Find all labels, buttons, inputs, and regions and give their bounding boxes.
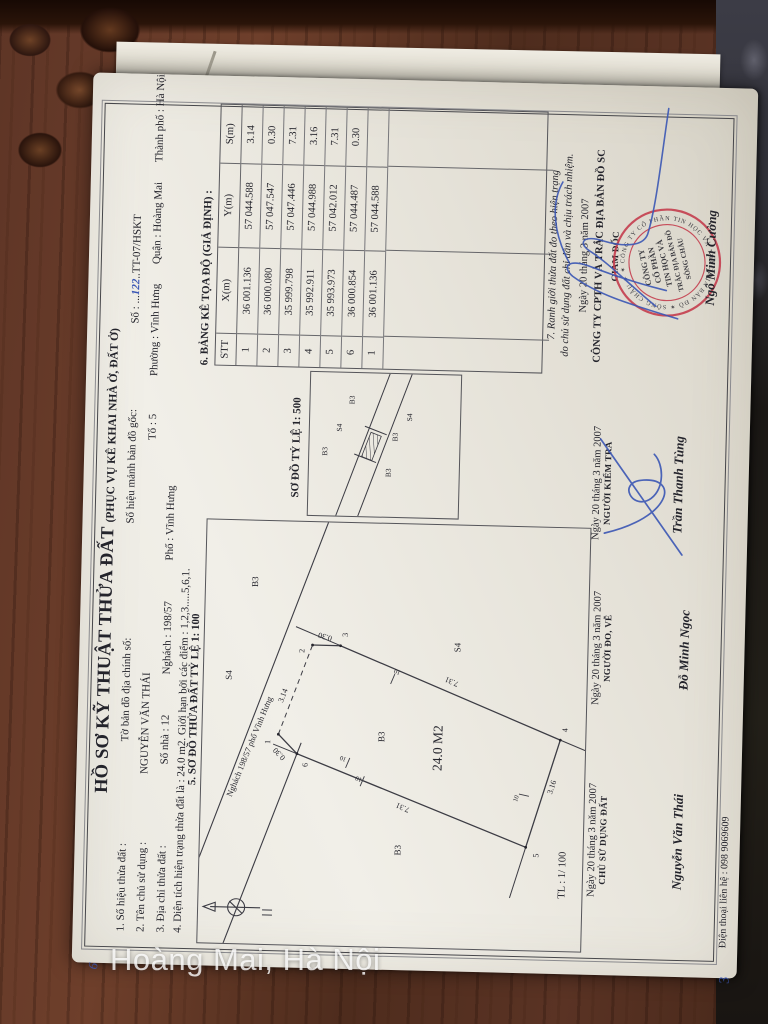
alley-value: Nghách : 198/57	[161, 601, 175, 675]
svg-text:1: 1	[263, 740, 272, 744]
svg-text:Nghách 198/57 phố Vĩnh Hưng: Nghách 198/57 phố Vĩnh Hưng	[224, 694, 274, 798]
svg-text:S4: S4	[405, 413, 414, 421]
svg-text:S4: S4	[335, 423, 344, 431]
checker-signature	[589, 391, 693, 573]
owner-name: NGUYỄN VĂN THÁI	[138, 672, 152, 774]
inset-plot-hatched	[362, 432, 382, 460]
svg-text:0.30: 0.30	[317, 630, 333, 643]
svg-text:B3: B3	[347, 395, 356, 404]
svg-text:B3: B3	[250, 576, 260, 587]
map-sheet-label: Tờ bản đồ địa chính số:	[119, 637, 134, 741]
svg-text:B3: B3	[391, 432, 400, 441]
svg-text:7.31: 7.31	[444, 675, 460, 689]
camera-location-watermark: Hoàng Mai, Hà Nội	[110, 942, 380, 978]
survey-document-page: HỒ SƠ KỸ THUẬT THỬA ĐẤT (PHỤC VỤ KÊ KHAI…	[72, 73, 759, 979]
thanhpho-value: Thành phố : Hà Nội	[153, 74, 167, 162]
svg-text:24.0 M2: 24.0 M2	[430, 725, 446, 771]
svg-text:B3: B3	[320, 447, 329, 456]
svg-text:10: 10	[354, 774, 363, 783]
svg-text:B3: B3	[392, 844, 402, 855]
svg-text:10: 10	[512, 794, 521, 802]
quan-value: Quận : Hoàng Mai	[151, 182, 165, 264]
doc-number-handwritten: 122	[130, 279, 142, 296]
director-signature	[537, 94, 703, 358]
document-title-suffix: (PHỤC VỤ KÊ KHAI NHÀ Ở, ĐẤT Ở)	[104, 328, 121, 523]
svg-text:4: 4	[560, 728, 569, 732]
signer-drafter-block: Ngày 20 tháng 3 năm 2007 NGƯỜI ĐO, VẼ Đỗ…	[589, 563, 694, 735]
owner-label: 2. Tên chủ sử dụng :	[134, 842, 148, 932]
svg-text:TL : 1/ 100: TL : 1/ 100	[556, 852, 568, 899]
street-value: Phố : Vĩnh Hưng	[164, 485, 178, 560]
address-label: 3. Địa chỉ thửa đất :	[154, 845, 168, 932]
svg-text:5: 5	[531, 853, 540, 857]
contact-phone-line: Điện thoại liên hệ : 098 9069609	[717, 816, 731, 948]
to-value: Tổ : 5	[147, 414, 160, 441]
coordinate-table: STTX(m)Y(m)S(m)136 001.13657 044.5883.14…	[214, 104, 548, 374]
pen-page-mark-right: 3	[717, 976, 734, 984]
inset-map-drawing: B3S4B3B3B3S4	[308, 372, 461, 519]
svg-text:S4: S4	[224, 670, 234, 680]
pen-page-mark-left: 6	[85, 961, 102, 970]
inset-map-box: B3S4B3B3B3S4	[307, 371, 462, 520]
svg-text:2: 2	[297, 649, 306, 653]
plot-sketch-box: 123456S4B3Nghách 198/57 phố Vĩnh Hưng3.1…	[196, 518, 591, 952]
svg-text:3.14: 3.14	[276, 687, 289, 703]
parcel-number-label: 1. Số hiệu thửa đất :	[114, 843, 128, 932]
north-arrow-icon	[203, 898, 272, 917]
svg-text:7.31: 7.31	[394, 801, 410, 815]
svg-text:10: 10	[339, 754, 348, 763]
svg-text:6: 6	[301, 763, 310, 767]
svg-text:3: 3	[341, 633, 350, 637]
signer-owner-block: Ngày 20 tháng 3 năm 2007 CHỦ SỬ DỤNG ĐẤT…	[584, 735, 688, 947]
svg-text:B3: B3	[384, 468, 393, 477]
plot-sketch-drawing: 123456S4B3Nghách 198/57 phố Vĩnh Hưng3.1…	[197, 519, 590, 951]
svg-text:S4: S4	[452, 642, 462, 652]
inset-map-heading: SƠ ĐỒ TỶ LỆ 1: 500	[289, 397, 303, 498]
svg-text:B3: B3	[376, 731, 386, 742]
house-no-value: Số nhà : 12	[159, 715, 172, 765]
phuong-value: Phường : Vĩnh Hưng	[148, 284, 162, 377]
